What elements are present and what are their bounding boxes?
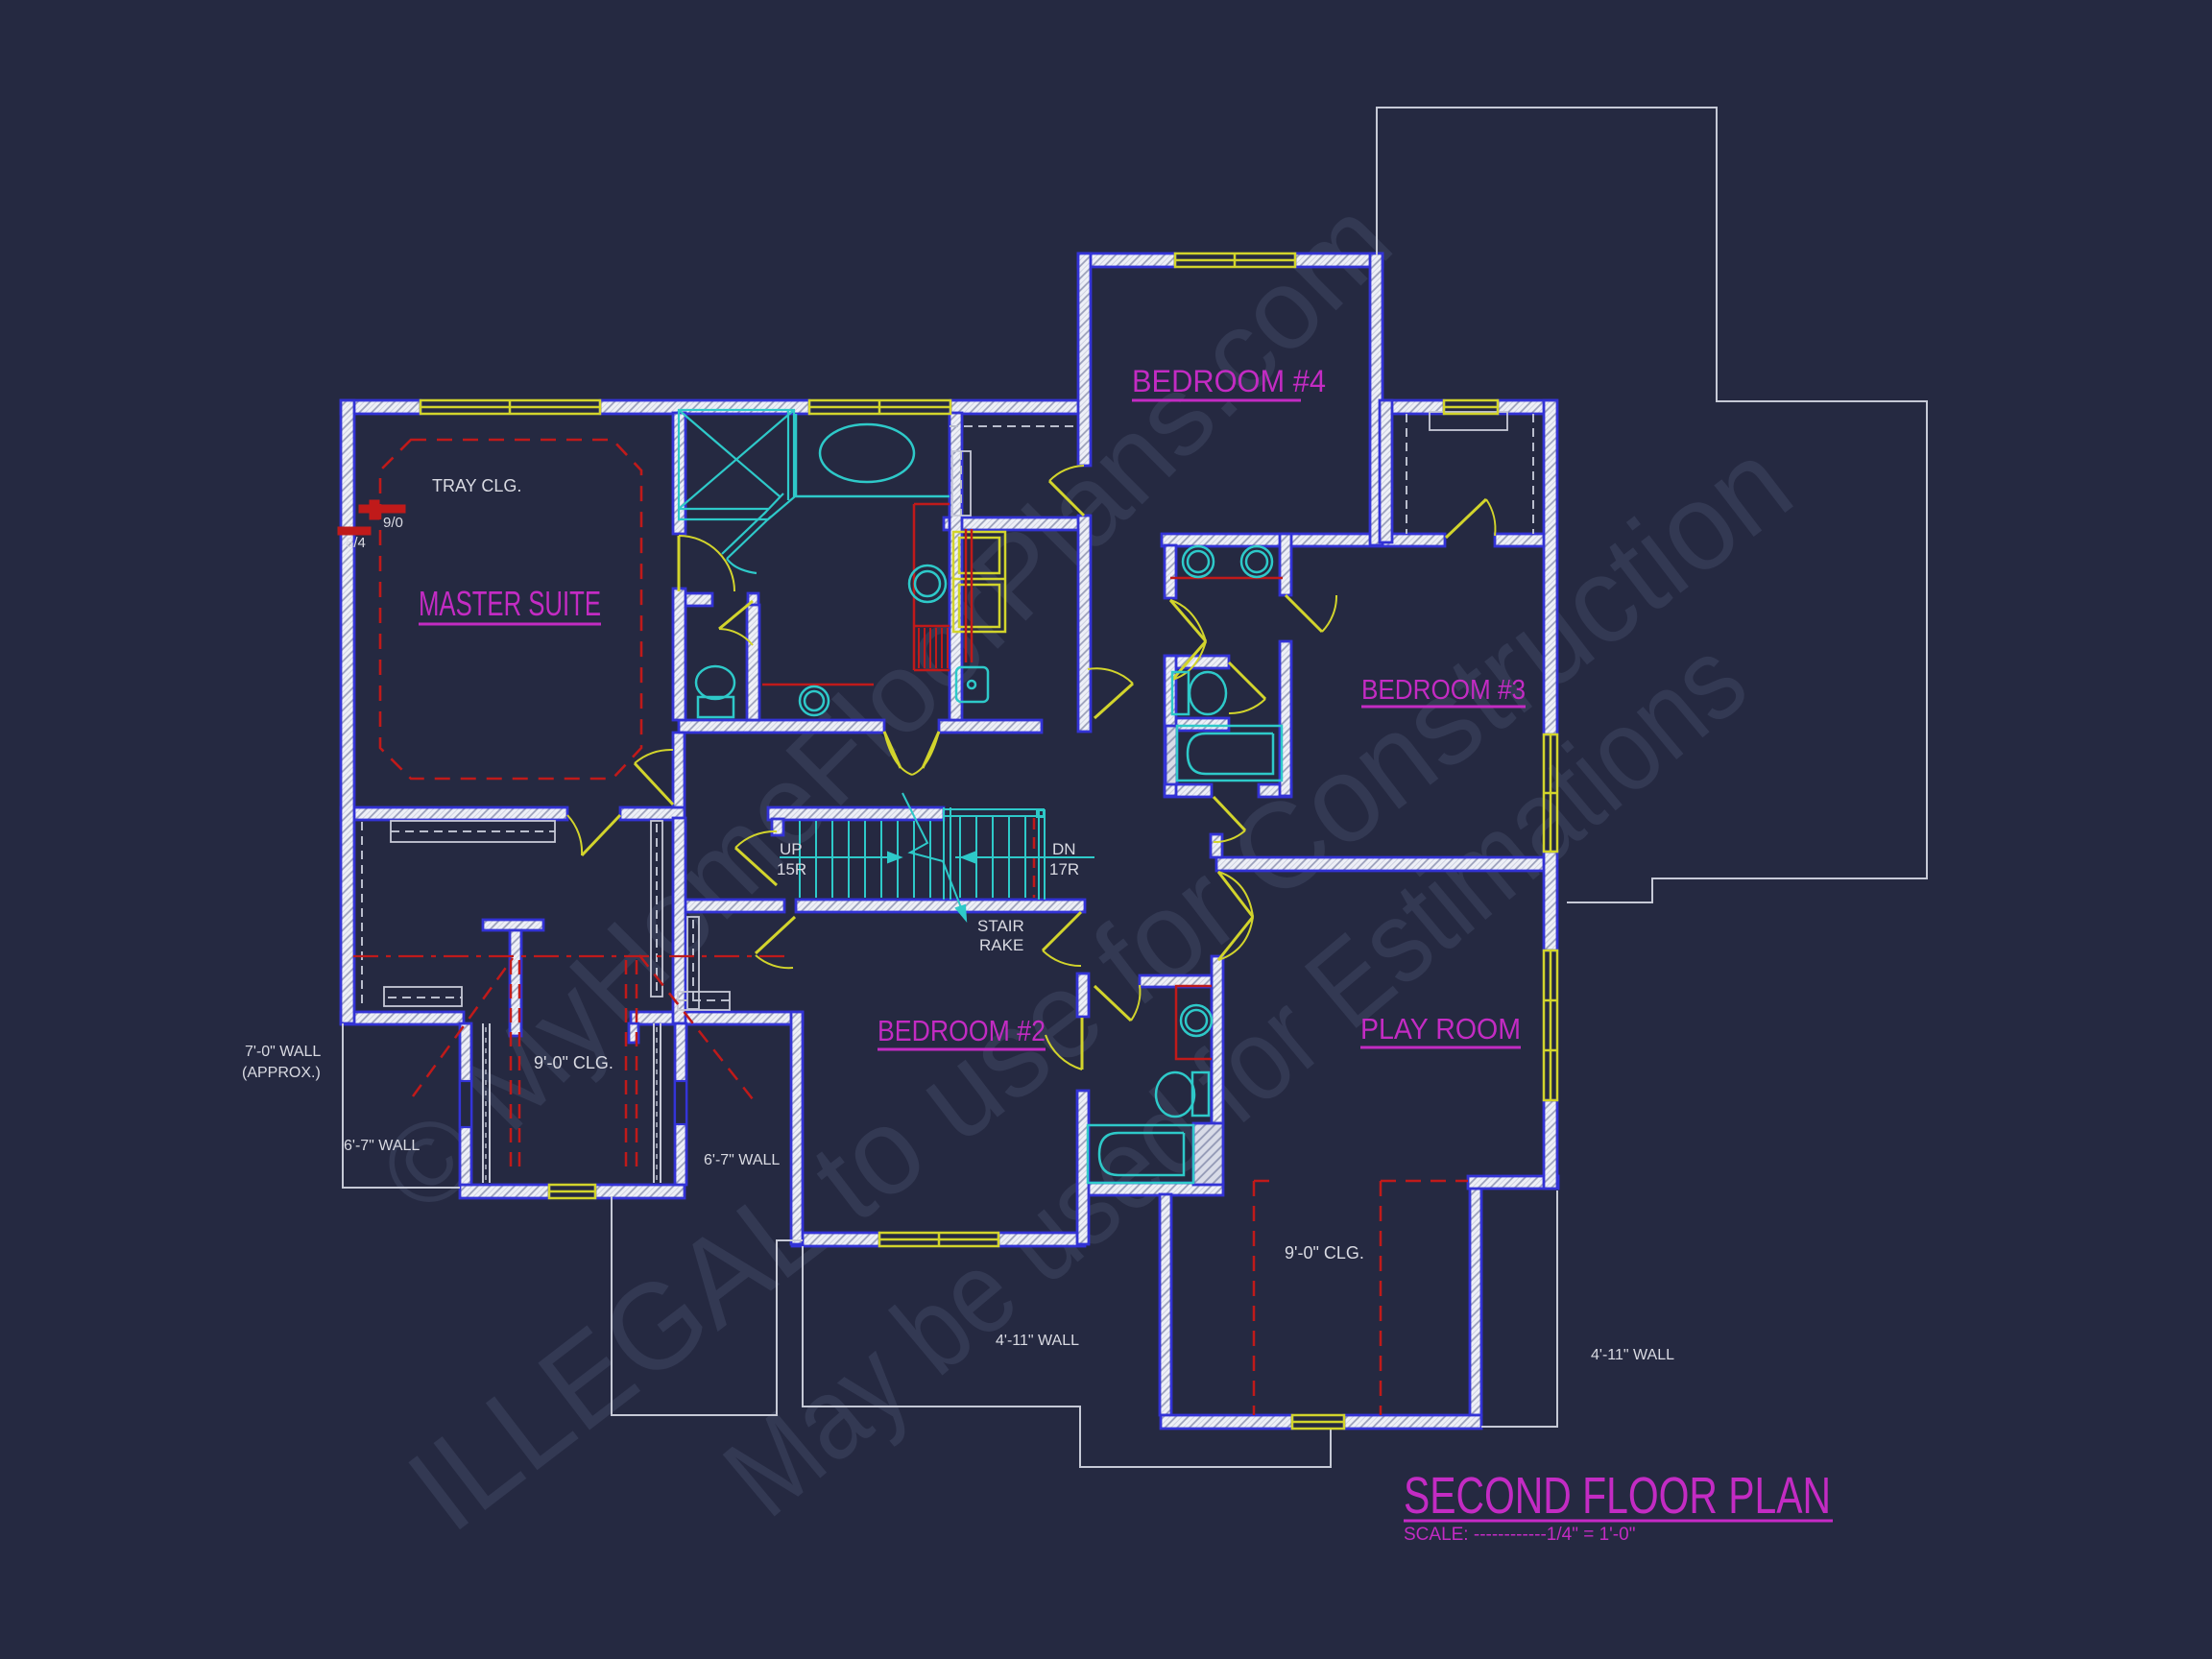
svg-text:BEDROOM #4: BEDROOM #4 <box>1132 364 1326 398</box>
svg-text:BEDROOM #2: BEDROOM #2 <box>878 1014 1046 1047</box>
svg-text:(APPROX.): (APPROX.) <box>242 1065 321 1081</box>
svg-text:SECOND FLOOR PLAN: SECOND FLOOR PLAN <box>1404 1467 1831 1525</box>
svg-text:17R: 17R <box>1049 860 1079 878</box>
svg-text:6'-7" WALL: 6'-7" WALL <box>344 1138 420 1154</box>
svg-text:6'-7" WALL: 6'-7" WALL <box>704 1152 780 1168</box>
svg-text:4'-11" WALL: 4'-11" WALL <box>996 1333 1079 1349</box>
svg-text:RAKE: RAKE <box>979 936 1023 954</box>
svg-text:4'-11" WALL: 4'-11" WALL <box>1591 1347 1674 1363</box>
svg-text:BEDROOM #3: BEDROOM #3 <box>1361 675 1526 706</box>
svg-text:DN: DN <box>1052 840 1076 858</box>
svg-text:7'-0" WALL: 7'-0" WALL <box>245 1044 321 1060</box>
svg-text:15R: 15R <box>777 860 806 878</box>
svg-text:UP: UP <box>780 840 803 858</box>
svg-text:PLAY ROOM: PLAY ROOM <box>1360 1012 1521 1046</box>
svg-text:9'-0" CLG.: 9'-0" CLG. <box>534 1053 613 1072</box>
svg-text:8/4: 8/4 <box>346 535 366 551</box>
svg-text:STAIR: STAIR <box>977 917 1024 935</box>
svg-text:MASTER SUITE: MASTER SUITE <box>419 584 601 623</box>
svg-text:9'-0" CLG.: 9'-0" CLG. <box>1285 1243 1364 1262</box>
svg-text:TRAY CLG.: TRAY CLG. <box>432 476 521 495</box>
svg-text:9/0: 9/0 <box>383 515 403 531</box>
svg-text:SCALE: ------------1/4" = 1'-0: SCALE: ------------1/4" = 1'-0" <box>1404 1525 1635 1545</box>
